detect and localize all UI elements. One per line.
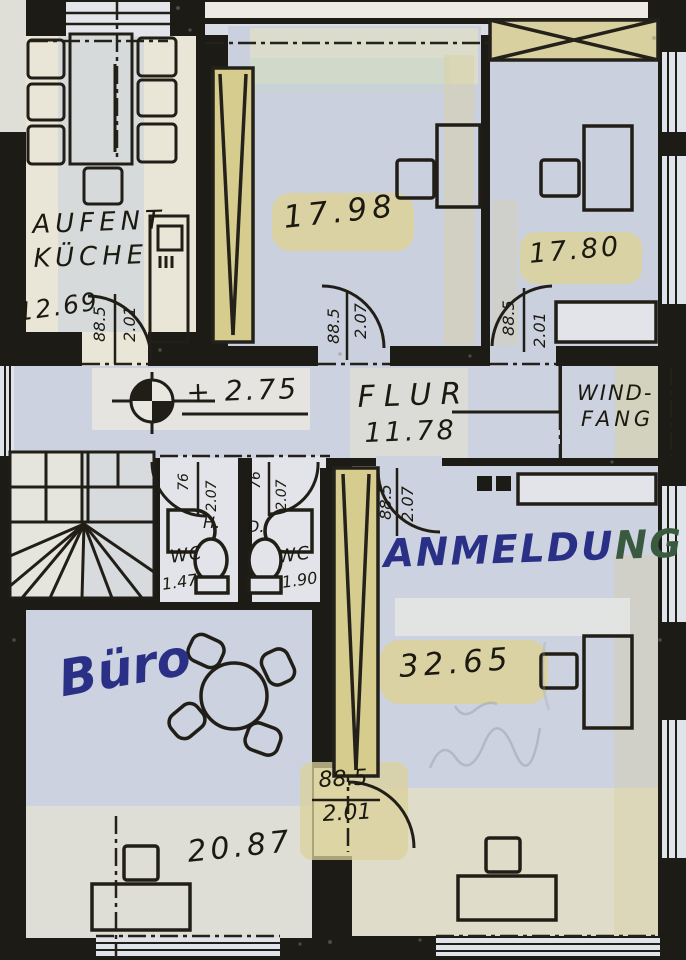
area-zimmer-rechts: 17.80 [528,233,622,268]
area-anmeldung: 32.65 [398,644,514,683]
chimney-zimmer-links [213,68,253,342]
dim-door-kueche-width: 88.5 [92,306,108,342]
dim-door-anmeldung-height: 2.07 [400,486,416,522]
dim-door-zimmer-links-width: 88.5 [326,308,342,344]
wc-herren-label: WC [169,544,204,566]
toilet-icon [249,539,281,581]
cistern [249,577,281,593]
duct-anmeldung [334,468,378,776]
room-label-anmeldung-handwritten: ANMELDUNG [383,525,684,574]
dim-door-zimmer-rechts-height: 2.01 [532,312,548,348]
room-label-kueche-line2: KÜCHE [33,242,149,272]
floor-plan-scan: AUFENT KÜCHE 12.69 17.98 17.80 + 2.75 FL… [0,0,686,960]
dim-door-wc-herren-height: 2.07 [205,480,219,511]
wc-damen-prefix: D. [247,519,264,535]
dim-door-zimmer-links-height: 2.07 [353,303,369,339]
radiator-block [496,476,511,491]
radiator [518,474,656,504]
room-label-kueche-line1: AUFENT [32,207,166,238]
sideboard [556,302,656,342]
dim-door-wc-damen-width: 76 [249,471,263,489]
anmeldung-text-blue: ANMELDU [383,524,616,577]
dim-door-wc-herren-width: 76 [177,473,191,491]
built-in-cupboard-icon [490,20,658,60]
area-flur: 11.78 [364,417,457,447]
room-label-flur: FLUR [357,379,471,413]
dim-door-kueche-height: 2.01 [122,306,138,342]
dim-door-buero-width: 88.5 [318,767,368,792]
anmeldung-text-green: NG [614,522,684,569]
radiator-block [477,476,492,491]
room-label-windfang-line1: WIND- [577,383,653,404]
dim-door-anmeldung-width: 88.5 [378,484,394,520]
cistern [196,577,228,593]
wc-damen-label: WC [277,544,312,566]
dim-door-wc-damen-height: 2.07 [275,479,289,510]
wc-herren-prefix: H. [203,515,220,531]
room-label-windfang-line2: FANG [581,409,654,430]
level-value: + 2.75 [186,375,300,407]
dim-door-zimmer-rechts-width: 88.5 [501,300,517,336]
dim-door-buero-height: 2.01 [322,801,372,826]
